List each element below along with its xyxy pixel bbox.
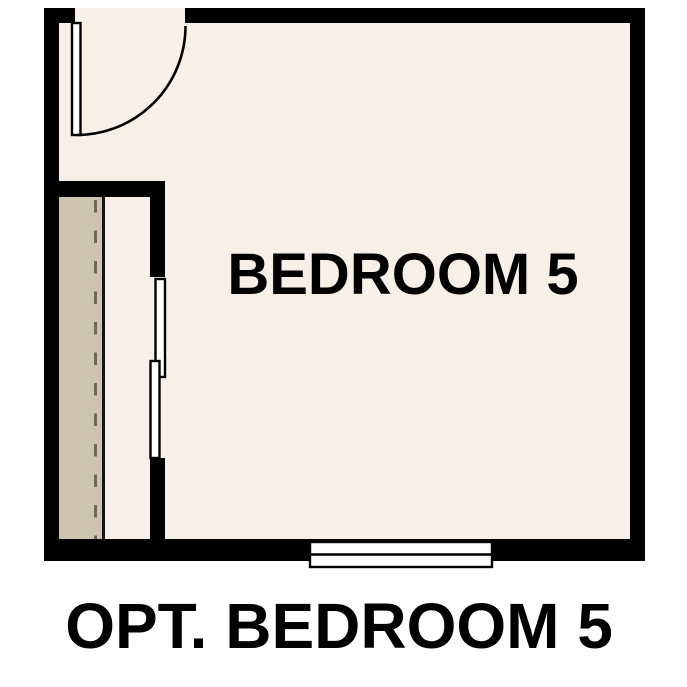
wall-top-right-segment bbox=[185, 8, 645, 23]
closet-bypass-door-panel-left bbox=[151, 361, 160, 458]
wall-right bbox=[630, 8, 645, 561]
room-label: BEDROOM 5 bbox=[227, 242, 578, 307]
page: { "plan": { "room_label": "BEDROOM 5", "… bbox=[0, 0, 687, 687]
plan-caption: OPT. BEDROOM 5 bbox=[65, 590, 613, 662]
closet-shelf-area bbox=[59, 197, 102, 539]
floorplan-drawing: BEDROOM 5 OPT. BEDROOM 5 bbox=[0, 0, 687, 687]
door-leaf bbox=[72, 23, 81, 135]
floorplan-figure: BEDROOM 5 OPT. BEDROOM 5 bbox=[0, 0, 687, 687]
closet-wall-upper-segment bbox=[150, 197, 165, 277]
door-opening bbox=[75, 8, 185, 23]
closet-wall-lower-segment bbox=[150, 458, 165, 539]
closet-wall-top-stub bbox=[59, 181, 165, 197]
wall-left bbox=[44, 8, 59, 561]
